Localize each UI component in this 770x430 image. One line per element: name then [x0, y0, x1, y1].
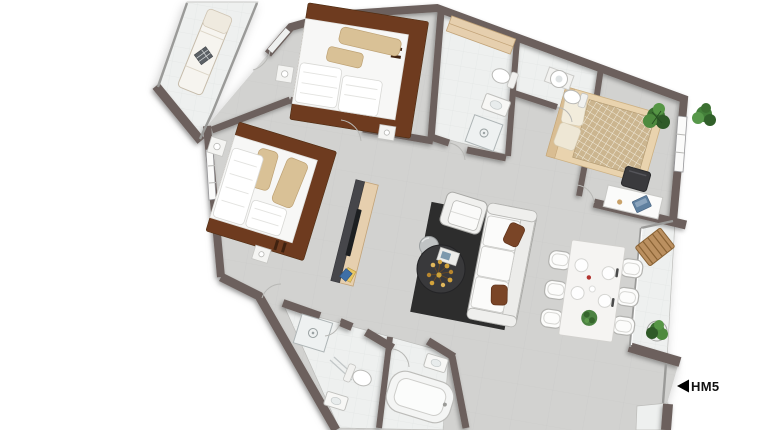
outdoor-plant-icon	[692, 103, 716, 126]
unit-label: HM5	[691, 379, 719, 394]
marker-arrow-icon	[677, 380, 689, 393]
nightstand	[276, 65, 294, 83]
sofa-pillow	[491, 285, 507, 305]
floor-plan: HM5	[0, 0, 770, 430]
nightstand	[378, 124, 396, 140]
unit-marker: HM5	[677, 379, 719, 394]
floor-plan-canvas: HM5	[0, 0, 770, 430]
coffee-table	[417, 245, 465, 293]
